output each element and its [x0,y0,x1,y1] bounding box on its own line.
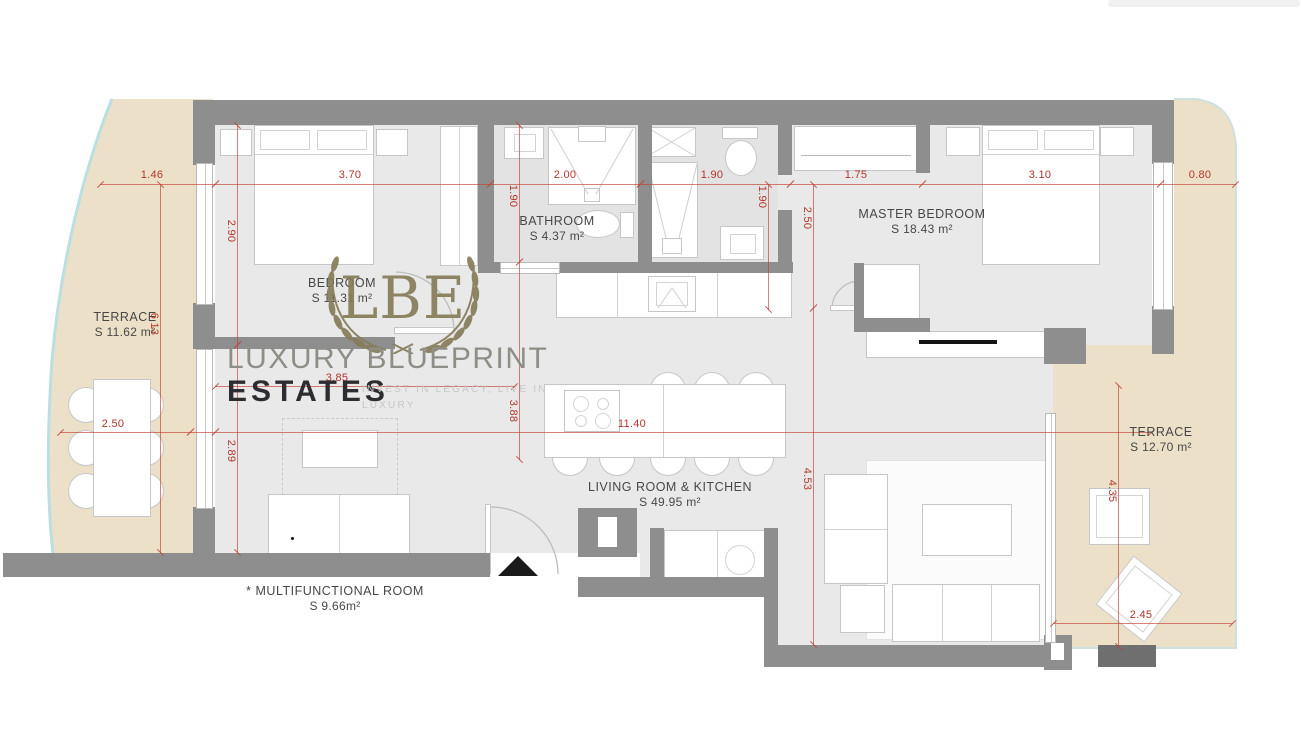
wall-master-entry [854,263,864,323]
dim-label: 2.90 [225,220,237,243]
dim-line-terrace-left [160,184,161,553]
dim-line-bath-kitchen [519,125,520,460]
room-area: S 4.37 m² [519,229,594,243]
dim-label: 2.89 [225,440,237,463]
dim-label: 11.40 [618,418,646,430]
wc-funnel-lines [648,164,697,238]
watermark-brand-line1: LUXURY BLUEPRINT [227,342,548,376]
room-name: TERRACE [93,310,156,324]
corner-pillar-opening [1051,643,1064,660]
wall-master-bottom [854,318,930,332]
wall-terrace-base [1098,645,1156,667]
entrance-arrow [498,556,538,576]
wall-left-low [193,507,215,554]
dim-label: 4.53 [801,468,813,491]
room-name: TERRACE [1129,425,1192,439]
wall-bottom-center [578,577,766,597]
window-mullion [205,350,206,508]
dim-line-terrace-right [1053,623,1233,624]
room-area: S 18.43 m² [858,222,985,236]
wc-washbox-x [648,128,695,156]
dim-line-bedroom [237,125,238,553]
floor-plan: 1.46 3.70 2.00 1.90 1.75 3.10 0.80 2.50 … [0,0,1301,735]
room-area: S 9.66m² [246,599,424,613]
dim-line-terrace-r [1118,385,1119,647]
dim-label: 3.10 [1029,169,1052,181]
dim-label: 1.46 [141,169,164,181]
entry-pillar-opening [598,517,617,547]
room-name: LIVING ROOM & KITCHEN [588,480,752,494]
dim-line-wc [768,184,769,310]
room-name: BATHROOM [519,214,594,228]
dim-line-top [100,184,1236,185]
dim-line-middle [60,432,1152,433]
watermark-laurel-wreath: LBE [298,246,508,354]
room-label-master-bedroom: MASTER BEDROOM S 18.43 m² [858,207,985,236]
wall-left-top [193,100,215,165]
wall-master-right-bottom [1152,306,1174,354]
dim-label: 0.80 [1189,169,1212,181]
room-label-terrace-right: TERRACE S 12.70 m² [1129,425,1192,454]
room-area: S 49.95 m² [588,495,752,509]
dim-label: 2.00 [554,169,577,181]
wall-wc-right-top [778,125,792,175]
dim-label: 2.50 [801,207,813,230]
watermark-tagline-line1: INVEST IN LEGACY, LIVE IN [362,384,548,395]
room-area: S 11.62 m² [93,325,156,339]
room-label-bathroom: BATHROOM S 4.37 m² [519,214,594,243]
bathroom-sliding-door [500,262,560,274]
wall-bottom-left [3,553,490,577]
wall-master-right-top [1152,100,1174,164]
dim-line-hall-living [813,184,814,645]
wall-living-left [764,575,778,667]
dim-label: 2.45 [1130,609,1153,621]
wall-top [195,100,1174,125]
wall-master-corner [1044,328,1086,364]
room-name: * MULTIFUNCTIONAL ROOM [246,584,424,598]
living-terrace-slider [1045,413,1056,643]
wall-hall-piece [916,125,930,173]
kitchen-sink-lines [658,288,686,308]
wall-wc-right-bottom [778,210,792,262]
dim-label: 1.90 [701,169,724,181]
watermark-tagline-line2: LUXURY [362,400,416,411]
dim-label: 1.90 [756,186,768,209]
dim-label: 1.90 [507,185,519,208]
room-name: MASTER BEDROOM [858,207,985,221]
window-mullion [1051,414,1052,642]
dim-label: 3.88 [507,400,519,423]
room-area: S 12.70 m² [1129,440,1192,454]
wall-left-mid [193,303,215,349]
dim-label: 2.50 [102,418,125,430]
wall-bath-wc-divider [638,125,652,262]
room-label-living-kitchen: LIVING ROOM & KITCHEN S 49.95 m² [588,480,752,509]
watermark-monogram: LBE [340,264,466,332]
room-label-multifunctional: * MULTIFUNCTIONAL ROOM S 9.66m² [246,584,424,613]
dim-label: 3.70 [339,169,362,181]
wall-laundry-left [650,528,664,592]
window-mullion [205,164,206,304]
dim-label: 1.75 [845,169,868,181]
wall-bottom-right [778,645,1058,667]
door-line [501,268,559,269]
room-label-terrace-left: TERRACE S 11.62 m² [93,310,156,339]
dim-label: 4.35 [1106,480,1118,503]
multifunctional-window [196,349,213,509]
